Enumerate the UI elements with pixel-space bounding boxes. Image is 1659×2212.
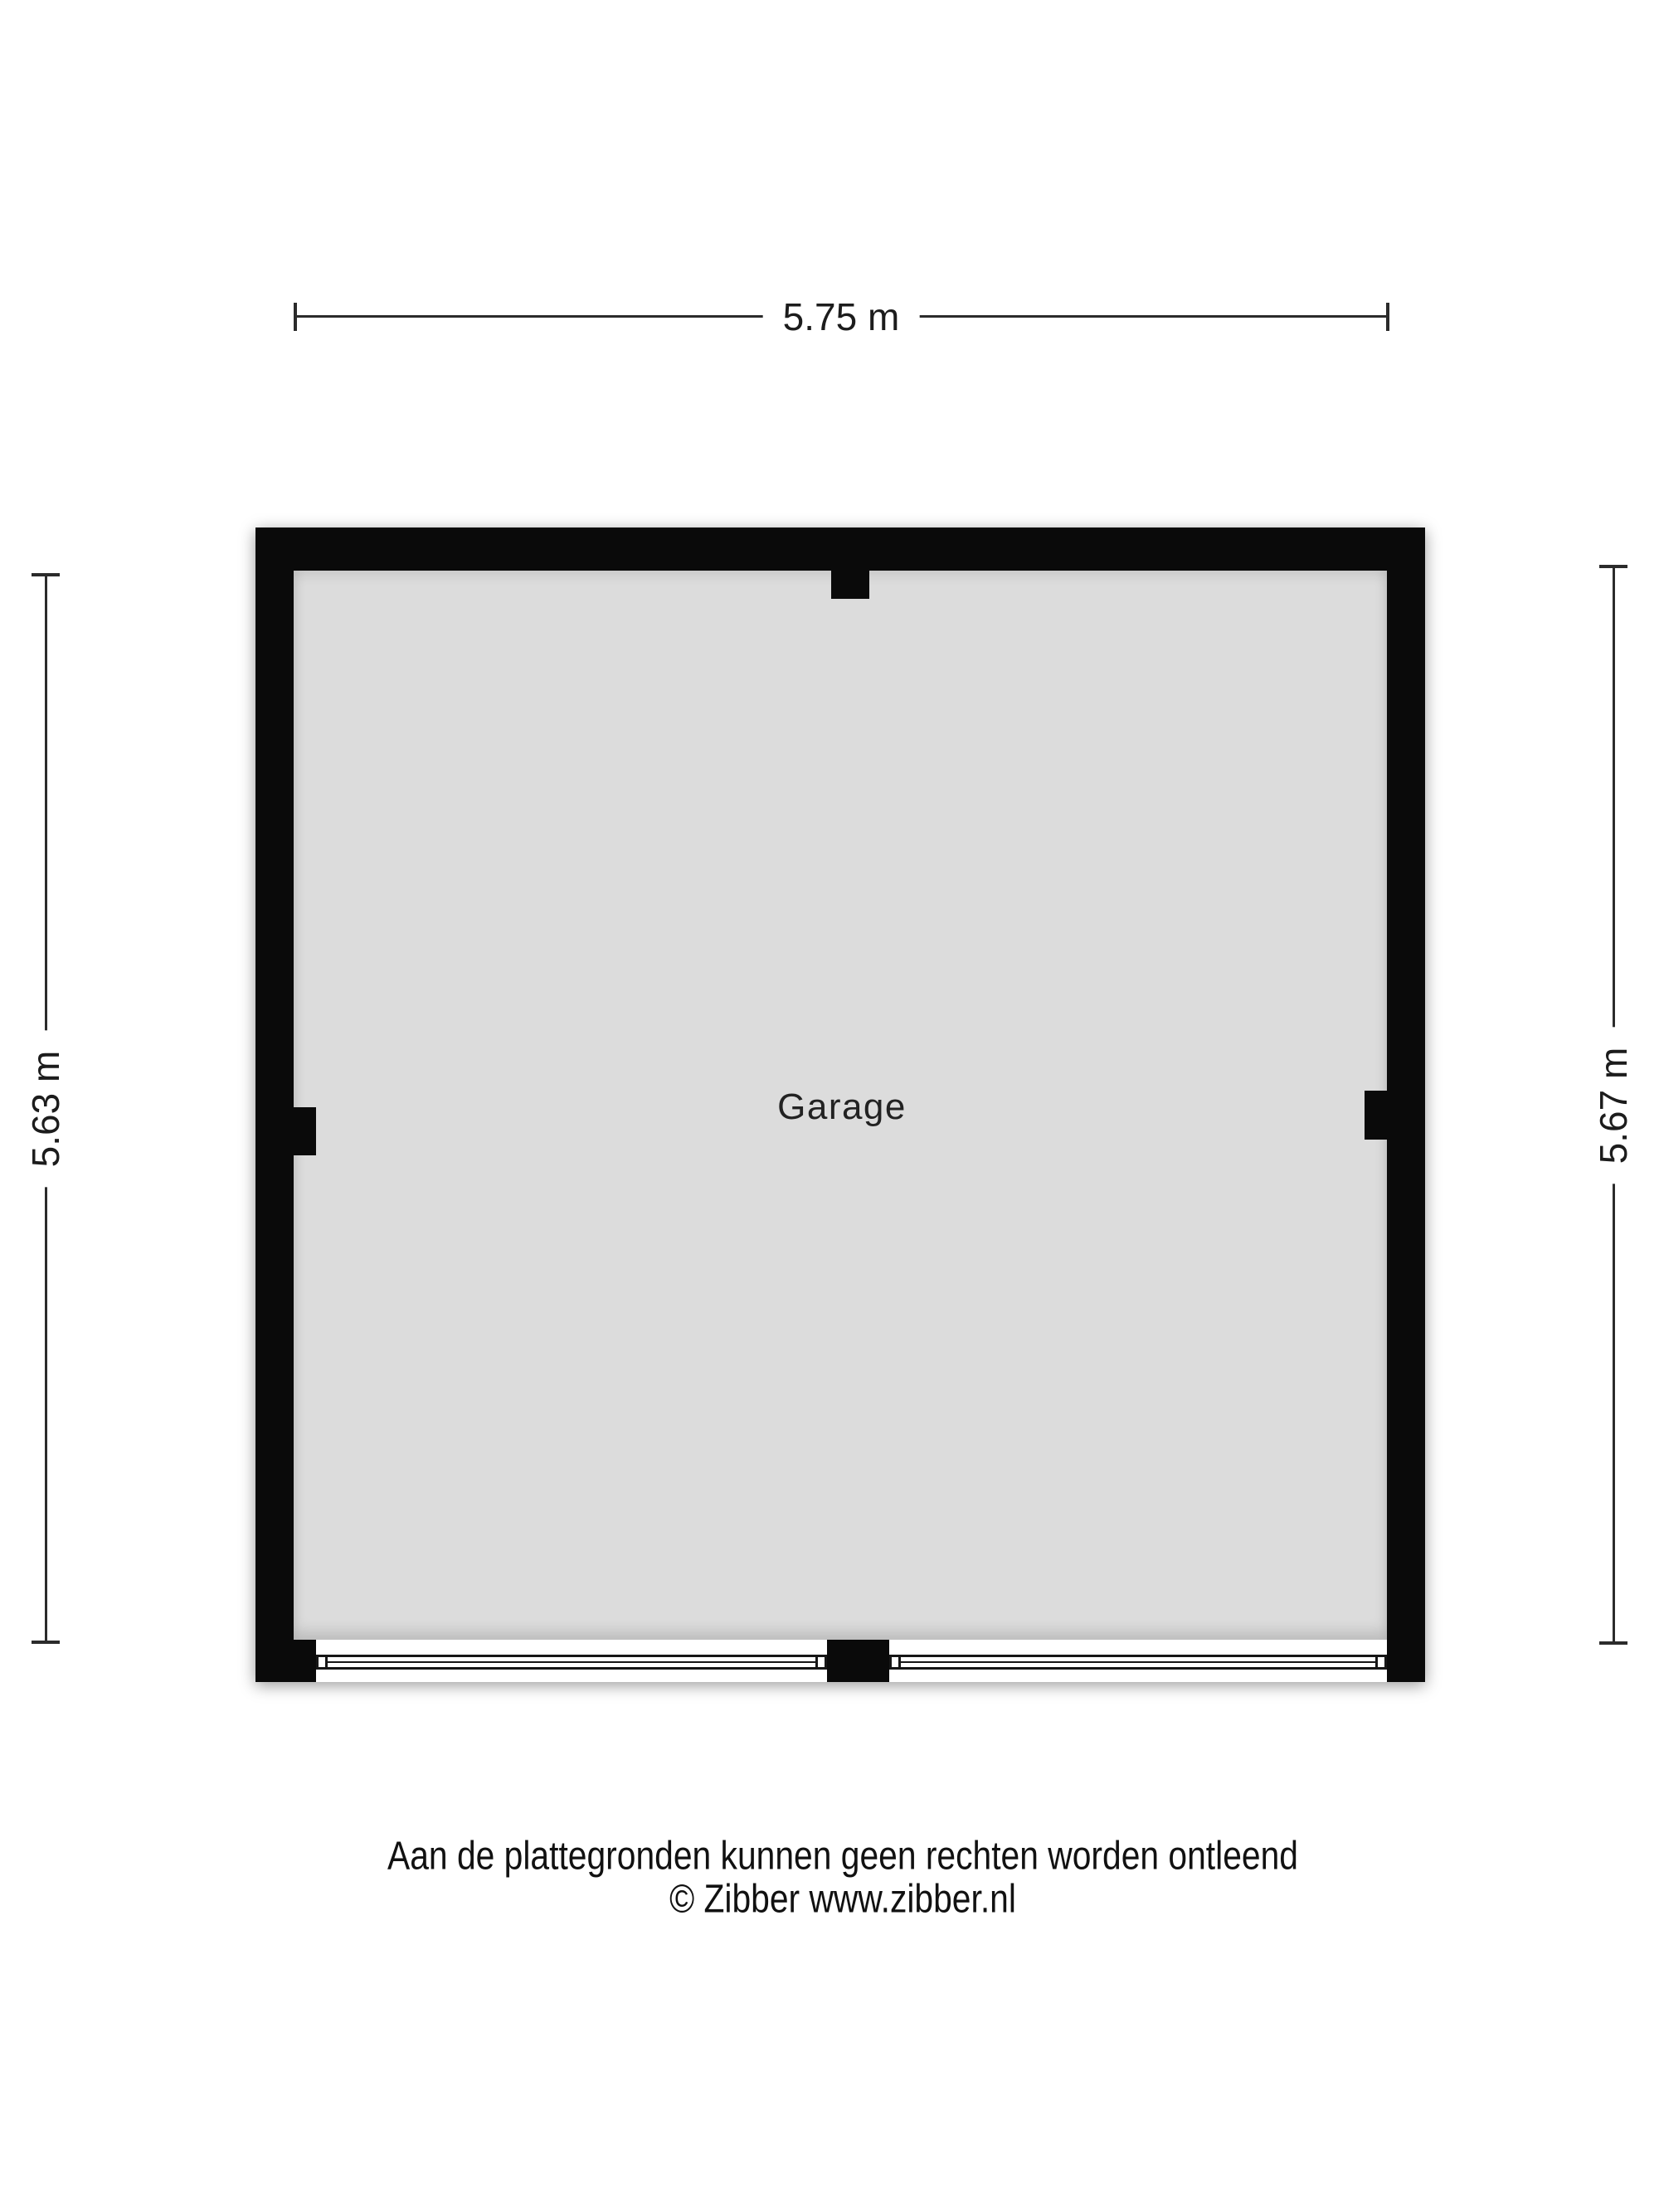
room-label: Garage	[777, 1087, 907, 1128]
dimension-left-cap-bottom	[32, 1641, 60, 1644]
garage-door-left	[316, 1655, 827, 1670]
wall-left	[255, 527, 294, 1682]
dimension-right-cap-bottom	[1599, 1641, 1627, 1645]
wall-notch-top-center	[831, 571, 869, 599]
dimension-top-cap-right	[1386, 303, 1389, 331]
dimension-left-label: 5.63 m	[22, 1031, 70, 1188]
garage-door-right-midline	[899, 1661, 1377, 1663]
dimension-right-cap-top	[1599, 565, 1627, 568]
dimension-top-cap-left	[294, 303, 297, 331]
footer-disclaimer: Aan de plattegronden kunnen geen rechten…	[387, 1834, 1298, 1879]
wall-stub-left-middle	[294, 1107, 316, 1155]
dimension-right-label: 5.67 m	[1589, 1028, 1637, 1184]
wall-top	[255, 527, 1425, 571]
wall-right	[1387, 527, 1425, 1682]
wall-pier-bottom-center	[827, 1640, 889, 1682]
garage-door-left-endcap-left	[325, 1657, 328, 1667]
garage-door-right-endcap-left	[898, 1657, 901, 1667]
garage-door-left-endcap-right	[815, 1657, 818, 1667]
dimension-left-cap-top	[32, 573, 60, 576]
garage-door-left-midline	[326, 1661, 817, 1663]
garage-door-right	[889, 1655, 1387, 1670]
garage-door-right-endcap-right	[1375, 1657, 1378, 1667]
wall-stub-right-middle	[1365, 1091, 1387, 1140]
footer-copyright: © Zibber www.zibber.nl	[669, 1877, 1016, 1923]
wall-stub-bottom-left	[294, 1640, 316, 1682]
floorplan-canvas: 5.75 m 5.63 m 5.67 m	[0, 0, 1659, 2212]
dimension-top-label: 5.75 m	[763, 293, 920, 341]
